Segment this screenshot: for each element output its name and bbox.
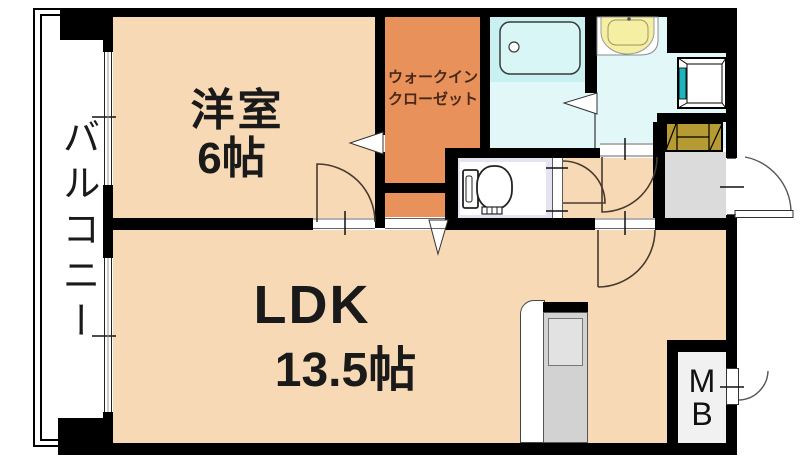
walk-in-closet-floor-lower bbox=[385, 148, 445, 183]
bathroom-tub-area bbox=[490, 17, 597, 82]
toilet-door-strip bbox=[552, 158, 563, 218]
wall-hall-genkan bbox=[653, 122, 665, 218]
shoe-cabinet-icon bbox=[665, 122, 723, 152]
door-opening-washroom bbox=[600, 143, 653, 158]
storage-nook-floor bbox=[385, 193, 445, 217]
ldk-size: 13.5帖 bbox=[228, 330, 463, 400]
door-opening-meterbox bbox=[726, 368, 737, 405]
entry-genkan-floor bbox=[665, 152, 726, 218]
door-opening-western-room bbox=[313, 218, 375, 230]
hall-floor bbox=[563, 158, 653, 218]
wall-left-upper bbox=[103, 17, 113, 52]
wall-washroom-bottom bbox=[657, 113, 737, 122]
wall-meterbox-top bbox=[667, 340, 737, 352]
kitchen-counter-front bbox=[520, 300, 545, 443]
kitchen-counter-cap bbox=[543, 302, 588, 312]
balcony-label: バルコニー bbox=[50, 82, 105, 382]
meter-box-label-line1: M bbox=[678, 363, 726, 400]
walk-in-closet-label-line2: クローゼット bbox=[387, 88, 479, 109]
wall-closet-bathroom bbox=[480, 8, 490, 158]
wall-meterbox-left bbox=[667, 340, 678, 455]
floor-plan: バルコニー 洋室 6帖 ウォークイン クローゼット LDK 13.5帖 M B bbox=[0, 0, 800, 465]
wall-bottom bbox=[58, 443, 737, 455]
wall-balcony-bottom-block bbox=[58, 418, 113, 443]
wall-toilet-top bbox=[445, 148, 600, 158]
wall-bath-washroom bbox=[585, 8, 597, 93]
kitchen-sink bbox=[548, 318, 583, 366]
door-opening-entrance bbox=[726, 158, 737, 215]
wall-westernroom-closet-lower bbox=[375, 152, 385, 228]
wall-westernroom-closet-upper bbox=[375, 17, 385, 135]
meter-box-label-line2: B bbox=[678, 396, 726, 433]
wall-main-east bbox=[655, 218, 737, 230]
wall-main-west bbox=[103, 218, 313, 230]
ldk-label: LDK bbox=[212, 274, 412, 336]
toilet-room-floor bbox=[458, 158, 552, 218]
wall-top bbox=[60, 8, 737, 17]
kitchen-counter-icon bbox=[520, 300, 588, 443]
walk-in-closet-label-line1: ウォークイン bbox=[387, 66, 479, 87]
wall-main-center bbox=[445, 218, 595, 230]
bathroom-floor bbox=[490, 82, 597, 148]
western-room-size: 6帖 bbox=[144, 122, 319, 186]
opening-storage-nook bbox=[385, 217, 445, 230]
door-opening-hall-ldk bbox=[595, 218, 655, 230]
wall-nook-top bbox=[385, 183, 445, 193]
